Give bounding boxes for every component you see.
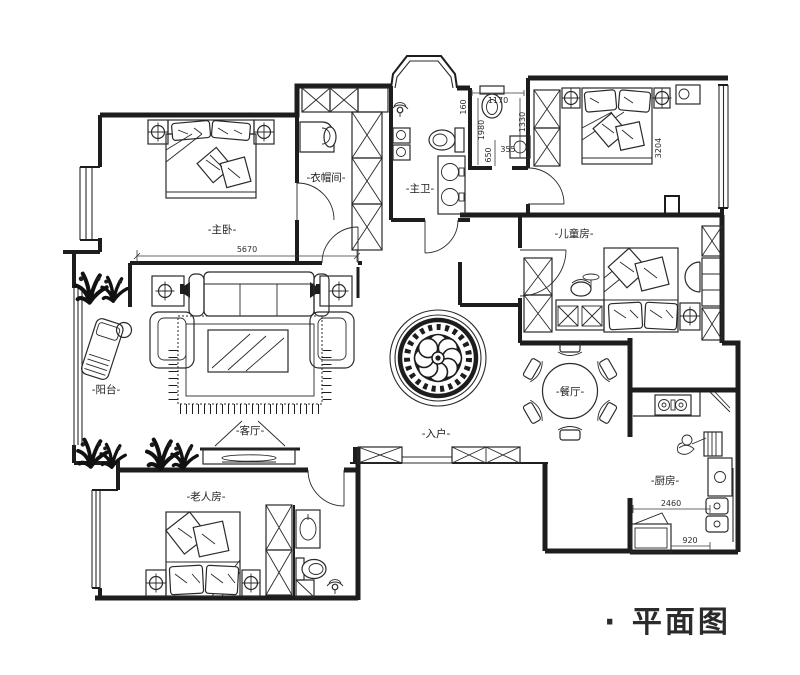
room-children — [524, 226, 722, 340]
sink-icon — [706, 498, 728, 514]
dim-room-depth: 3204 — [654, 138, 663, 158]
dim-master-width: 5670 — [237, 245, 257, 254]
label-master-bathroom: -主卫- — [406, 183, 435, 195]
dim-bath-offset: 160 — [459, 99, 468, 114]
dressing-table-icon — [300, 122, 336, 152]
cloakroom-door-arc — [297, 183, 334, 220]
wardrobe-icon — [266, 505, 292, 595]
label-entrance: -入户- — [422, 427, 451, 440]
stove-icon — [655, 395, 691, 415]
radiator-icon — [704, 432, 722, 456]
room-master-bath — [392, 103, 465, 214]
wardrobe-icon — [534, 90, 560, 166]
label-dining-room: -餐厅- — [556, 385, 585, 398]
room-bedroom-right — [534, 85, 700, 166]
drawing-title: · 平面图 — [604, 605, 731, 640]
bed-icon — [582, 88, 652, 164]
tv-cabinet — [203, 449, 295, 464]
floor-medallion-icon — [390, 310, 486, 406]
label-living-room: -客厅- — [236, 424, 265, 437]
lamp-table — [676, 85, 700, 104]
dim-bath-depth: 1980 — [477, 120, 486, 140]
tv-icon — [222, 455, 276, 461]
sink-icon — [706, 516, 728, 532]
person-figure — [678, 435, 707, 454]
room-elder — [146, 505, 343, 597]
wardrobe-icon — [524, 258, 552, 332]
dim-kitchen-width: 2460 — [661, 499, 681, 508]
children-door-arc — [520, 250, 566, 296]
mirror-icon — [685, 262, 700, 292]
floor-plan-canvas: -主卧- -衣帽间- -主卫- -儿童房- -阳台- -客厅- -入户- -餐厅… — [0, 0, 800, 675]
coffee-table-icon — [208, 330, 288, 372]
master-bath-door-arc — [425, 220, 458, 253]
toilet-icon — [296, 558, 326, 580]
room-kitchen — [631, 392, 732, 552]
room-cloakroom — [300, 88, 388, 250]
wardrobe-icon — [352, 112, 382, 250]
label-children-room: -儿童房- — [554, 227, 593, 240]
bed-icon — [166, 120, 256, 198]
bed-icon — [166, 512, 240, 596]
label-balcony: -阳台- — [92, 383, 121, 396]
shoe-cabinets — [358, 447, 520, 463]
label-kitchen: -厨房- — [651, 474, 680, 487]
dim-niche-width: 355 — [500, 145, 515, 154]
fridge-icon — [631, 513, 671, 552]
corner-cabinet — [710, 392, 730, 412]
double-sink-icon — [438, 156, 465, 214]
bedroom-door-arc — [528, 168, 564, 204]
dim-wc-depth: 1330 — [518, 112, 527, 132]
dim-fridge-width: 920 — [682, 536, 697, 545]
dim-bath-width: 1170 — [488, 96, 508, 105]
room-master-bedroom — [148, 120, 274, 198]
toilet-icon — [429, 128, 464, 152]
label-master-bedroom: -主卧- — [208, 223, 237, 236]
dim-niche-depth: 650 — [484, 147, 493, 162]
label-elder-room: -老人房- — [186, 490, 225, 503]
bed-icon — [604, 248, 678, 332]
elder-door-arc — [308, 470, 344, 506]
chair-icon — [571, 282, 591, 296]
side-table — [117, 323, 132, 338]
room-balcony — [76, 274, 197, 469]
master-door-arc — [322, 227, 358, 263]
desk-icon — [556, 274, 604, 330]
label-cloakroom: -衣帽间- — [306, 171, 345, 184]
